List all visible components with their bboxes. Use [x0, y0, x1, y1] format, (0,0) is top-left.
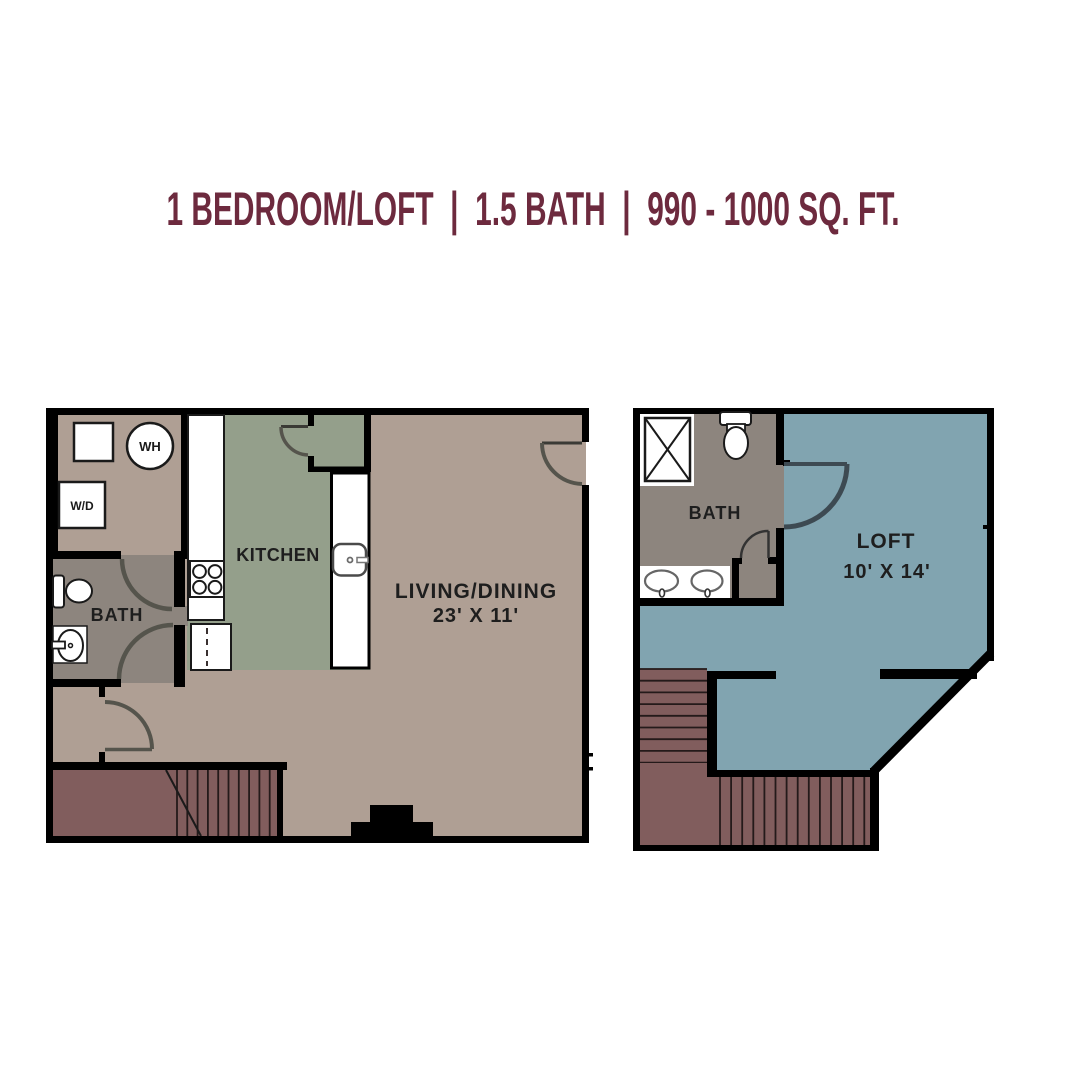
svg-text:W/D: W/D: [70, 499, 94, 513]
svg-text:WH: WH: [139, 439, 161, 454]
svg-text:LIVING/DINING: LIVING/DINING: [395, 580, 557, 603]
svg-text:23' X 11': 23' X 11': [433, 605, 519, 627]
svg-text:1 BEDROOM/LOFT | 1.5 BATH |: 1 BEDROOM/LOFT | 1.5 BATH | 990 - 1000 S…: [167, 182, 900, 235]
svg-text:KITCHEN: KITCHEN: [236, 545, 320, 565]
svg-text:BATH: BATH: [689, 503, 742, 523]
svg-text:LOFT: LOFT: [857, 530, 916, 553]
svg-text:10' X 14': 10' X 14': [843, 561, 930, 583]
svg-text:BATH: BATH: [91, 605, 144, 625]
